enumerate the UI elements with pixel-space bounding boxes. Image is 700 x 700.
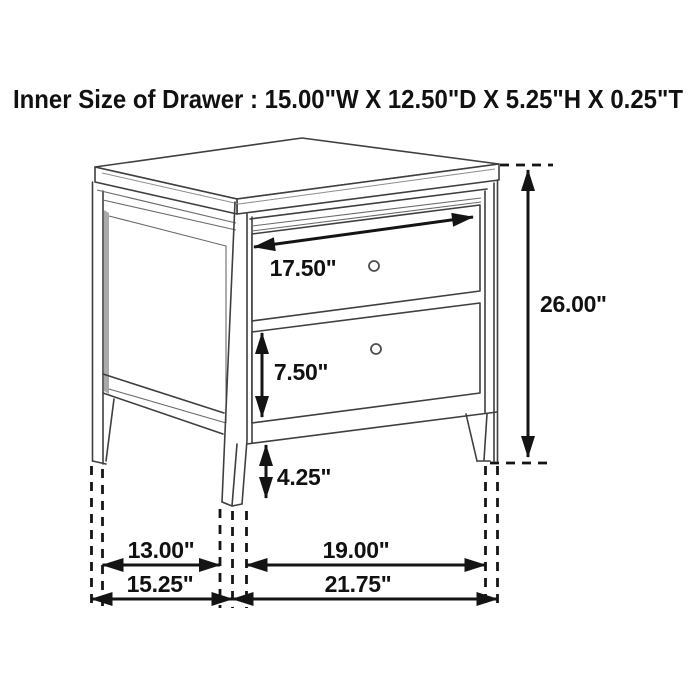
side-leg-spacing-label: 13.00": [128, 537, 195, 563]
base-clearance-label: 4.25": [277, 464, 331, 490]
overall-height-label: 26.00": [540, 291, 607, 317]
dimension-diagram: Inner Size of Drawer : 15.00"W X 12.50"D…: [0, 0, 700, 700]
knob-icon: [371, 344, 381, 354]
side-panel: [93, 182, 237, 464]
panel-shadow: [104, 210, 109, 394]
overall-width-label: 21.75": [325, 571, 392, 597]
front-right-leg: [466, 414, 490, 461]
drawer-width-label: 17.50": [270, 255, 337, 281]
overall-depth-label: 15.25": [127, 571, 194, 597]
drawer-height-label: 7.50": [274, 359, 328, 385]
page-title: Inner Size of Drawer : 15.00"W X 12.50"D…: [13, 84, 683, 114]
nightstand-drawing: [93, 138, 500, 506]
front-leg-spacing-label: 19.00": [323, 537, 390, 563]
tabletop: [95, 138, 499, 214]
knob-icon: [369, 261, 379, 271]
product-dimension-image: Inner Size of Drawer : 15.00"W X 12.50"D…: [0, 0, 700, 700]
